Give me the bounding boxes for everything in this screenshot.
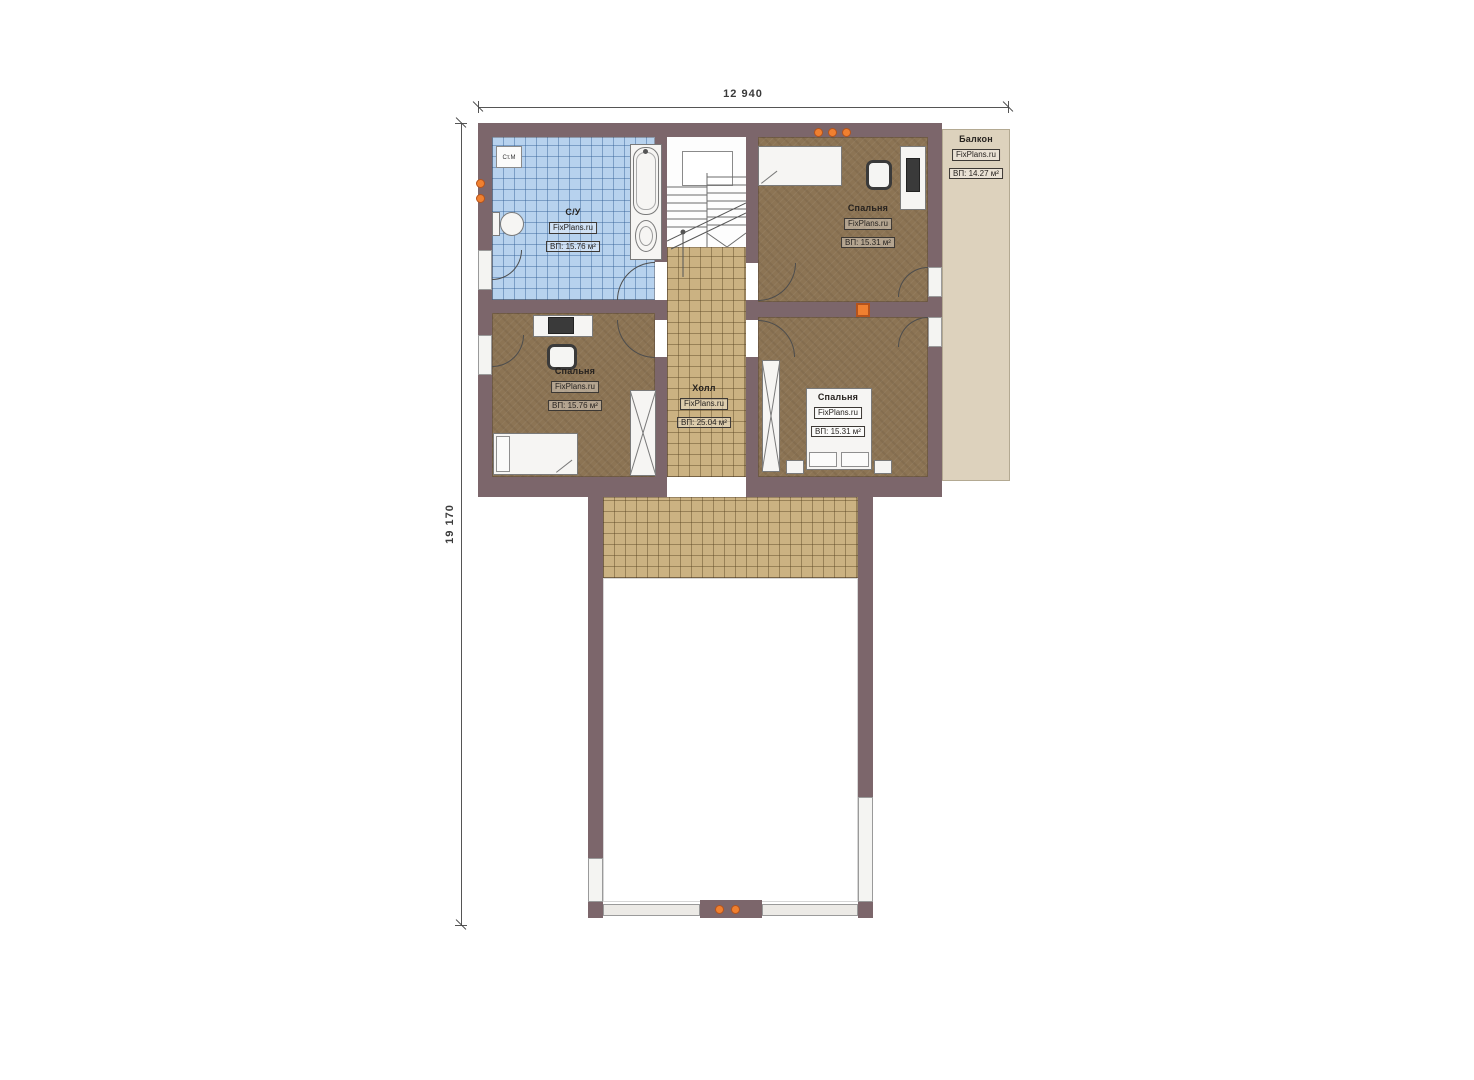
room-label-bedroom-bottom-right: Спальня FixPlans.ru ВП: 15.31 м² — [811, 392, 865, 439]
room-name: Спальня — [811, 392, 865, 402]
flue-marker-icon — [856, 303, 870, 317]
washing-machine-tag: Ст.М — [496, 146, 522, 168]
pillow — [496, 436, 510, 472]
pillow — [841, 452, 869, 467]
bed — [758, 146, 842, 186]
vent-dot-icon — [715, 905, 724, 914]
room-area: ВП: 15.76 м² — [548, 400, 602, 411]
room-area: ВП: 15.76 м² — [546, 241, 600, 252]
vent-dot-icon — [476, 194, 485, 203]
vent-dot-icon — [731, 905, 740, 914]
light-dot-icon — [842, 128, 851, 137]
nightstand — [786, 460, 804, 474]
stairs-icon — [667, 137, 746, 282]
room-name: Балкон — [949, 134, 1003, 144]
wall — [858, 490, 873, 797]
room-site: FixPlans.ru — [551, 381, 599, 392]
vent-dot-icon — [476, 179, 485, 188]
light-dot-icon — [814, 128, 823, 137]
room-name: С/У — [546, 207, 600, 217]
room-label-bedroom-top-right: Спальня FixPlans.ru ВП: 15.31 м² — [841, 203, 895, 250]
room-label-balcony: Балкон FixPlans.ru ВП: 14.27 м² — [949, 134, 1003, 181]
room-label-bedroom-bottom-left: Спальня FixPlans.ru ВП: 15.76 м² — [548, 366, 602, 413]
pillow — [809, 452, 837, 467]
printer-icon — [548, 317, 574, 334]
sink-inner — [639, 226, 653, 246]
bathtub-inner — [636, 152, 656, 210]
open-area-below — [603, 578, 858, 902]
room-site: FixPlans.ru — [952, 149, 1000, 160]
dimension-height-label: 19 170 — [444, 504, 456, 544]
light-dot-icon — [828, 128, 837, 137]
nightstand — [874, 460, 892, 474]
room-site: FixPlans.ru — [549, 222, 597, 233]
wall — [655, 357, 667, 477]
room-area: ВП: 14.27 м² — [949, 168, 1003, 179]
chair-icon — [866, 160, 892, 190]
wall — [588, 902, 603, 918]
room-area: ВП: 25.04 м² — [677, 417, 731, 428]
dimension-line-left — [461, 123, 462, 925]
balcony-door — [928, 267, 942, 297]
wardrobe-icon — [762, 360, 780, 472]
balcony-floor — [942, 129, 1010, 481]
computer-icon — [906, 158, 920, 192]
wall — [746, 477, 942, 497]
wall — [746, 302, 942, 317]
room-area: ВП: 15.31 м² — [841, 237, 895, 248]
wall — [858, 902, 873, 918]
window — [478, 335, 492, 375]
room-label-bathroom: С/У FixPlans.ru ВП: 15.76 м² — [546, 207, 600, 254]
window — [858, 797, 873, 902]
window-sill — [603, 904, 700, 916]
hall-floor-wide — [603, 497, 858, 578]
wall — [588, 490, 603, 858]
floor-plan: Ст.М С/У FixPlans.ru ВП: 15.76 м² — [0, 0, 1474, 1080]
room-label-hall: Холл FixPlans.ru ВП: 25.04 м² — [677, 383, 731, 430]
wall — [928, 123, 942, 267]
wall — [746, 357, 758, 477]
faucet-icon — [643, 149, 648, 154]
room-site: FixPlans.ru — [814, 407, 862, 418]
wall — [478, 300, 667, 313]
wall — [928, 347, 942, 497]
room-area: ВП: 15.31 м² — [811, 426, 865, 437]
balcony-door — [928, 317, 942, 347]
wardrobe-icon — [630, 390, 656, 476]
window-sill — [762, 904, 858, 916]
window — [478, 250, 492, 290]
wall — [478, 123, 942, 137]
room-name: Спальня — [548, 366, 602, 376]
washing-machine-label: Ст.М — [502, 155, 515, 161]
wall — [478, 477, 667, 497]
room-site: FixPlans.ru — [680, 398, 728, 409]
dimension-width-label: 12 940 — [478, 88, 1008, 100]
toilet-icon — [492, 212, 500, 236]
wall — [746, 137, 758, 263]
window — [588, 858, 603, 902]
dimension-line-top — [478, 107, 1008, 108]
room-site: FixPlans.ru — [844, 218, 892, 229]
room-name: Спальня — [841, 203, 895, 213]
toilet-icon — [500, 212, 524, 236]
room-name: Холл — [677, 383, 731, 393]
